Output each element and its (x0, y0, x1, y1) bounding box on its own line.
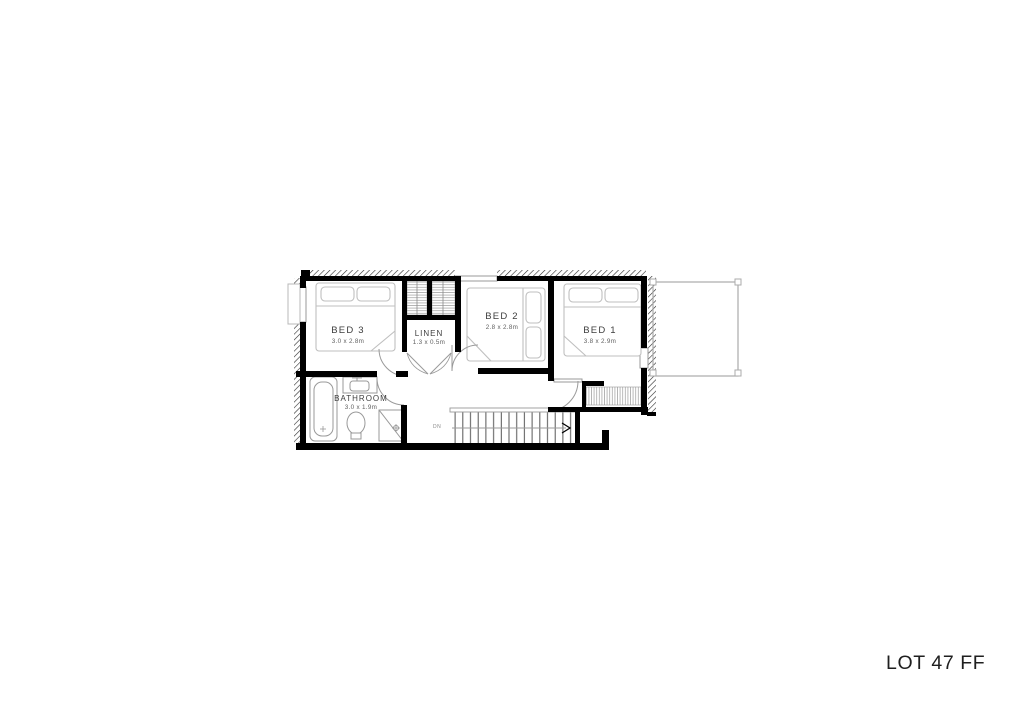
bed-furniture (316, 283, 641, 361)
bed2-robe-icon (432, 281, 455, 315)
bathroom-fixtures (310, 374, 403, 441)
bed1-bed-icon (564, 284, 641, 356)
window-box-left-icon (288, 284, 300, 324)
bed2-bed-icon (467, 288, 545, 361)
lot-title: LOT 47 FF (886, 652, 985, 675)
bathroom-door-swing (377, 378, 404, 405)
bathtub-icon (310, 377, 337, 441)
floor-plan-drawing (0, 0, 1024, 724)
floor-plan-canvas: BED 3 3.0 x 2.8m LINEN 1.3 x 0.5m BED 2 … (0, 0, 1024, 724)
bed1-robe-icon (586, 387, 644, 405)
linen-door-swings (407, 353, 451, 374)
toilet-icon (347, 412, 365, 439)
window-top-icon (455, 276, 497, 281)
stair-direction-label: DN (433, 424, 441, 430)
bed3-bed-icon (316, 283, 395, 351)
linen-door-leaves (407, 353, 451, 374)
bed1-door-swing (548, 381, 578, 411)
shower-icon (379, 410, 403, 441)
staircase (450, 408, 577, 443)
balcony-outline (650, 279, 741, 376)
